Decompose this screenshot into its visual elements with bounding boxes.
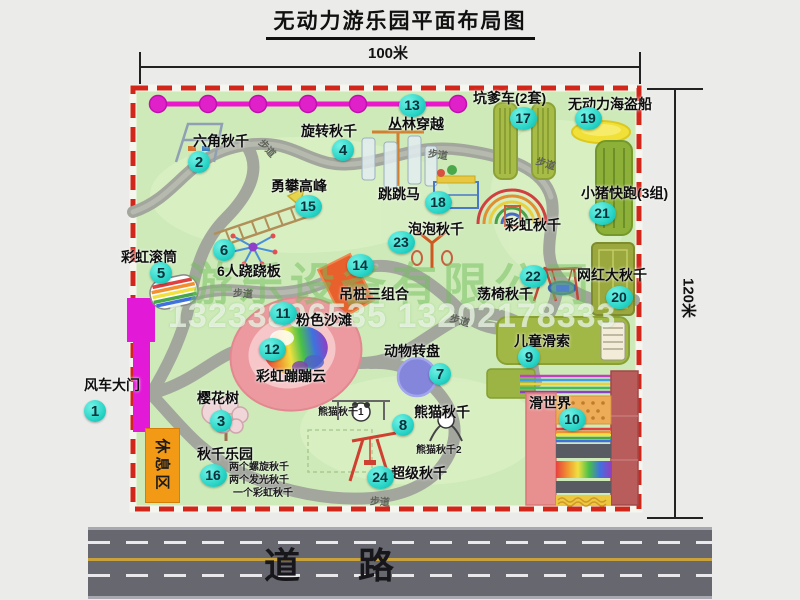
attraction-label-11: 粉色沙滩 (296, 310, 352, 330)
attraction-label-20: 网红大秋千 (577, 265, 647, 285)
attraction-label-4: 旋转秋千 (301, 121, 357, 141)
rest-area-box: 休息区 (145, 428, 180, 503)
attraction-badge-15: 15 (295, 195, 322, 218)
attraction-label-3: 樱花树 (197, 388, 239, 408)
attraction-label-12: 彩虹蹦蹦云 (256, 366, 326, 386)
attraction-badge-12: 12 (259, 338, 286, 361)
attraction-label-22: 荡椅秋千 (477, 284, 533, 304)
attraction-label-5: 彩虹滚筒 (121, 247, 177, 267)
attraction-badge-16: 16 (200, 464, 227, 487)
attraction-badge-1: 1 (84, 400, 106, 422)
attraction-label-6: 6人跷跷板 (217, 261, 281, 281)
attraction-badge-20: 20 (606, 286, 633, 309)
attraction-badge-7: 7 (429, 363, 451, 385)
attraction-badge-11: 11 (270, 302, 297, 325)
sub-label: 熊猫秋千1 (318, 403, 364, 418)
attraction-badge-19: 19 (575, 107, 602, 130)
attraction-label-15: 勇攀高峰 (271, 176, 327, 196)
attraction-badge-2: 2 (188, 151, 210, 173)
walkway-label: 步道 (427, 145, 449, 163)
attraction-label-18: 跳跳马 (378, 184, 420, 204)
attraction-badge-22: 22 (520, 265, 547, 288)
attraction-label-1: 风车大门 (84, 375, 140, 395)
attraction-label-24: 超级秋千 (391, 463, 447, 483)
walkway-label: 步道 (370, 492, 391, 508)
attraction-label-7: 动物转盘 (384, 341, 440, 361)
attraction-label-彩虹秋千: 彩虹秋千 (505, 215, 561, 235)
sub-label: 熊猫秋千2 (416, 441, 462, 456)
attraction-label-13: 丛林穿越 (388, 114, 444, 134)
attraction-label-8: 熊猫秋千 (414, 402, 470, 422)
attraction-badge-3: 3 (210, 410, 232, 432)
attraction-badge-17: 17 (510, 107, 537, 130)
attraction-badge-8: 8 (392, 414, 414, 436)
dimension-width-label: 100米 (348, 42, 428, 63)
attraction-label-21: 小猪快跑(3组) (581, 183, 668, 203)
attraction-badge-13: 13 (399, 94, 426, 117)
attraction-label-17: 坑爹车(2套) (473, 88, 546, 108)
road-label: 道 路 (88, 537, 594, 589)
attraction-label-23: 泡泡秋千 (408, 219, 464, 239)
attraction-badge-24: 24 (367, 466, 394, 489)
attraction-badge-9: 9 (518, 346, 540, 368)
attraction-badge-18: 18 (425, 191, 452, 214)
walkway-label: 步道 (233, 284, 254, 300)
attraction-badge-23: 23 (388, 231, 415, 254)
sub-label: 一个彩虹秋千 (233, 484, 293, 499)
plan-title-text: 无动力游乐园平面布局图 (266, 5, 535, 40)
attraction-badge-4: 4 (332, 139, 354, 161)
attraction-badge-6: 6 (213, 239, 235, 261)
attraction-badge-10: 10 (559, 408, 586, 431)
playground-plan-image: 无动力游乐园平面布局图 100米 120米 (0, 0, 800, 600)
attraction-label-2: 六角秋千 (193, 131, 249, 151)
page-title: 无动力游乐园平面布局图 (0, 5, 800, 40)
attraction-label-14: 吊桩三组合 (339, 284, 409, 304)
attraction-badge-5: 5 (150, 262, 172, 284)
dimension-height-label: 120米 (679, 278, 700, 318)
attraction-badge-21: 21 (589, 202, 616, 225)
attraction-badge-14: 14 (347, 254, 374, 277)
rest-area-label: 休息区 (152, 438, 173, 492)
